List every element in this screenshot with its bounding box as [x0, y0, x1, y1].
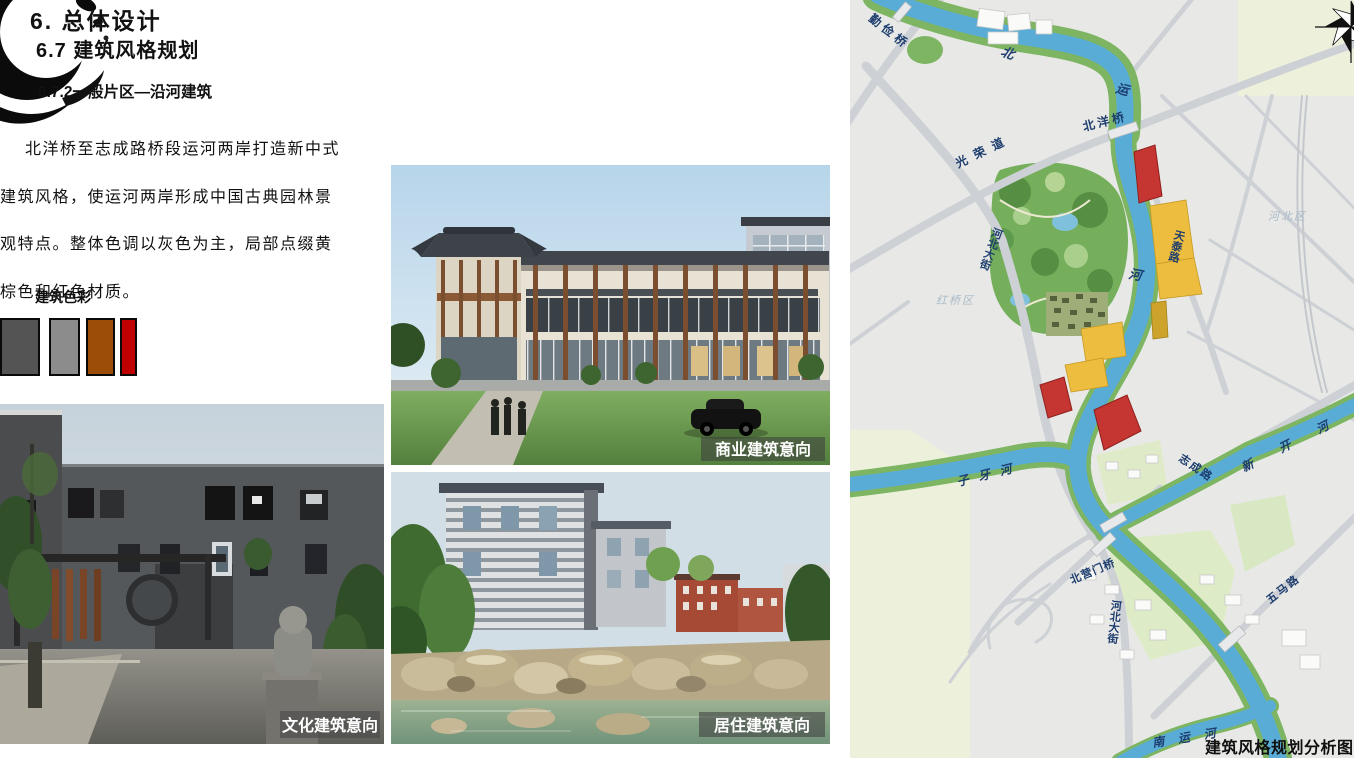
photo-culture-building: 文化建筑意向 [0, 404, 384, 744]
caption-culture: 文化建筑意向 [280, 711, 380, 738]
paragraph-line: 观特点。整体色调以灰色为主，局部点缀黄 [0, 221, 352, 269]
map-caption: 建筑风格规划分析图 [1205, 738, 1354, 757]
caption-commercial-text: 商业建筑意向 [715, 440, 811, 459]
paragraph-line: 建筑风格，使运河两岸形成中国古典园林景 [0, 174, 352, 222]
label-hebei-district: 河北区 [1268, 210, 1307, 223]
photo-residential-building: 居住建筑意向 [391, 472, 830, 744]
color-swatch-red [120, 318, 137, 376]
pedestrians [491, 397, 526, 435]
label-hongqiao-district: 红桥区 [936, 294, 975, 307]
paragraph-line: 北洋桥至志成路桥段运河两岸打造新中式 [0, 126, 352, 174]
photo-commercial-building: 商业建筑意向 [391, 165, 830, 465]
slide-page: { "slide": { "heading1": "6. 总体设计", "hea… [0, 0, 1354, 758]
residential-photo-art: 居住建筑意向 [391, 472, 830, 744]
caption-commercial: 商业建筑意向 [701, 437, 825, 461]
color-swatch-brown [86, 318, 115, 376]
wall-medallion [129, 577, 175, 623]
map-art: 勤俭桥 北 运 河 北洋桥 光荣道 河北大街 天泰路 红桥区 河北区 子牙河 新… [850, 0, 1354, 758]
section-title: 6.7 建筑风格规划 [36, 34, 199, 63]
caption-residential-text: 居住建筑意向 [714, 716, 810, 735]
commercial-photo-art: 商业建筑意向 [391, 165, 830, 465]
planning-analysis-map: 勤俭桥 北 运 河 北洋桥 光荣道 河北大街 天泰路 红桥区 河北区 子牙河 新… [850, 0, 1354, 758]
caption-culture-text: 文化建筑意向 [282, 716, 378, 735]
page-title: 6. 总体设计 [30, 2, 162, 36]
subsection-title: 6.7.2一般片区—沿河建筑 [38, 80, 212, 102]
palette-title: 建筑色彩 [35, 287, 91, 307]
color-swatch-dark-gray [0, 318, 40, 376]
culture-photo-art: 文化建筑意向 [0, 404, 384, 744]
caption-residential: 居住建筑意向 [699, 712, 825, 737]
color-swatch-medium-gray [49, 318, 80, 376]
wooden-sign-post [28, 642, 42, 708]
